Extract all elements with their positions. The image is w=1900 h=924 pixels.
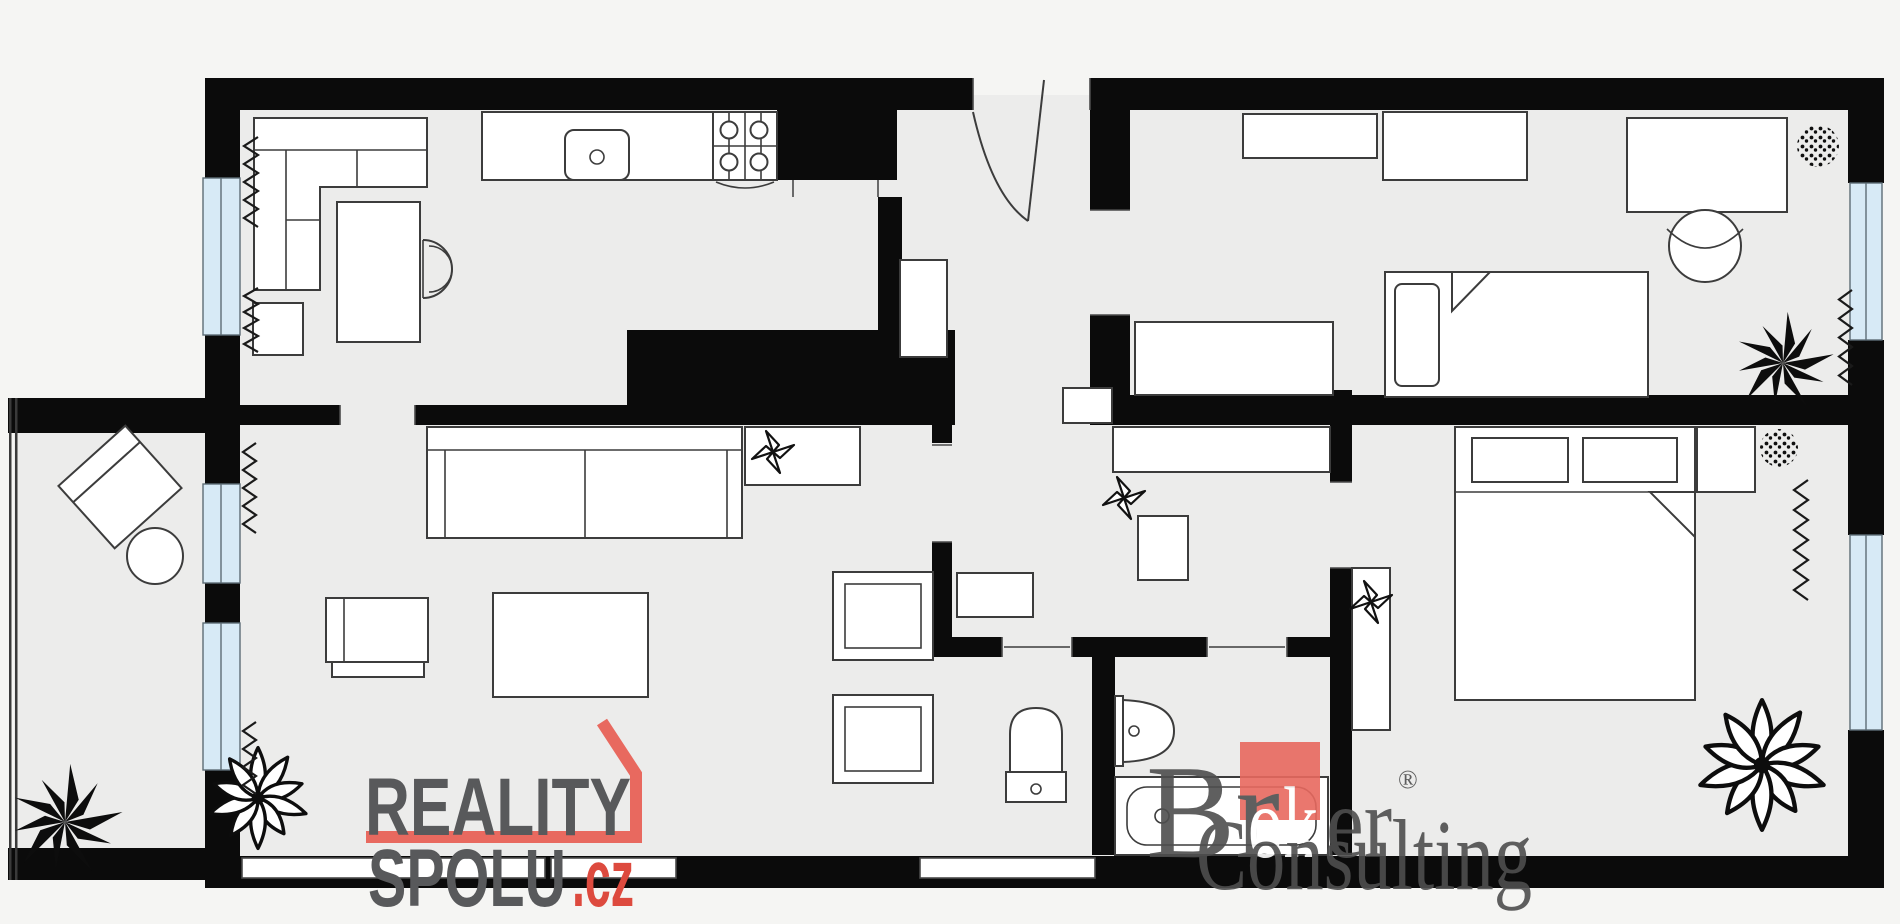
dining-table (337, 202, 420, 342)
basin-wall-strip (1115, 696, 1123, 766)
wall-shelf (1243, 114, 1377, 158)
bed1-west-wall-a (1090, 110, 1130, 210)
hall-closet (900, 260, 947, 357)
wc (1006, 708, 1066, 802)
wc-bath-wall (1092, 657, 1115, 855)
broker-consulting-word: Consulting (1196, 799, 1532, 911)
coffee-table (493, 593, 648, 697)
armchair (833, 572, 933, 660)
registered-mark-icon: ® (1398, 765, 1418, 794)
bed1-west-wall-b (1090, 315, 1130, 395)
floorplan-image: REALITY SPOLU .cz Br ok er ® Consulting (0, 0, 1900, 924)
desk (1627, 118, 1787, 212)
sanitary-wall-b (1072, 637, 1207, 657)
shoe-cabinet (1063, 388, 1112, 423)
round-table (127, 528, 183, 584)
wall-left-3 (205, 583, 240, 623)
balcony-wall-bottom (8, 848, 205, 880)
burner-icon (721, 122, 738, 139)
window-sill (920, 858, 1095, 878)
kitchen-right-wall (878, 197, 902, 332)
side-chair (326, 598, 428, 662)
kitchen-sink (565, 130, 629, 180)
armchair (833, 695, 933, 783)
reality-logo-tld: .cz (572, 833, 634, 924)
pillow (1583, 438, 1677, 482)
washing-machine (1138, 516, 1188, 580)
plant-dotted-icon (1760, 429, 1798, 467)
wardrobe (1383, 112, 1527, 180)
balcony-railing (9, 398, 12, 880)
bed1-south-wall-a (1090, 395, 1333, 425)
divider-wall-west (240, 405, 340, 425)
pillow (1472, 438, 1568, 482)
toilet-bowl (1010, 708, 1062, 772)
hall-west-wall-b (932, 542, 952, 637)
plant-dotted-icon (1797, 125, 1839, 167)
wall-left-1 (205, 78, 240, 178)
wall-right-2 (1848, 340, 1884, 535)
desk-chair (1669, 210, 1741, 282)
wall-top-left (205, 78, 973, 110)
pillow (1395, 284, 1439, 386)
reality-logo-line2: SPOLU (368, 833, 566, 924)
shaft-wall (777, 110, 897, 180)
wall-right-1 (1848, 78, 1884, 183)
burner-icon (721, 154, 738, 171)
balcony-wall-top (8, 398, 205, 433)
hall-west-wall-a (932, 425, 952, 443)
wall-left-2 (205, 335, 240, 484)
floorplan-svg: REALITY SPOLU .cz Br ok er ® Consulting (0, 0, 1900, 924)
nightstand (1697, 427, 1755, 492)
burner-icon (751, 154, 768, 171)
burner-icon (751, 122, 768, 139)
divider-wall-east (415, 405, 627, 425)
hall-wardrobe (1113, 427, 1330, 472)
low-cabinet (253, 303, 303, 355)
bed1-south-wall-b (1333, 395, 1848, 425)
sanitary-wall-a (932, 637, 1002, 657)
long-cabinet (1135, 322, 1333, 395)
balcony-railing (15, 398, 18, 880)
corridor-cabinet (957, 573, 1033, 617)
toilet-tank (1006, 772, 1066, 802)
wall-top-right (1090, 78, 1864, 110)
side-chair-base (332, 662, 424, 677)
